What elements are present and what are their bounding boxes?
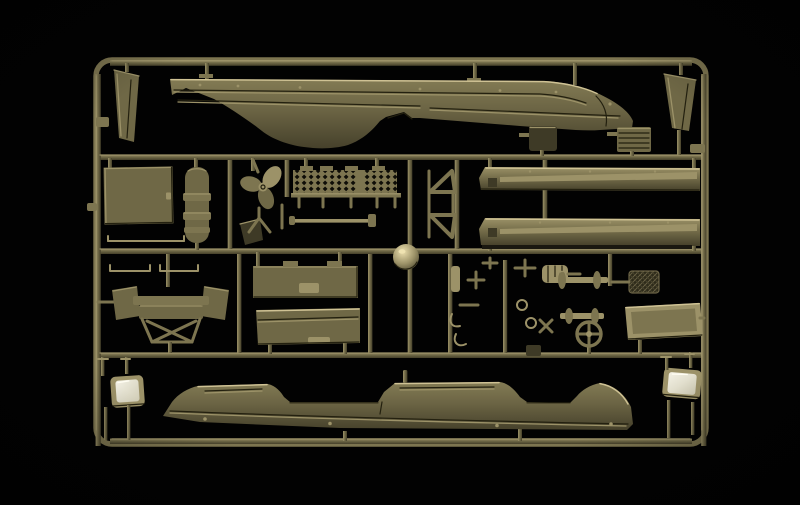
sprue-photo [0, 0, 800, 505]
vignette-overlay [0, 0, 800, 505]
photo-stage [0, 0, 800, 505]
